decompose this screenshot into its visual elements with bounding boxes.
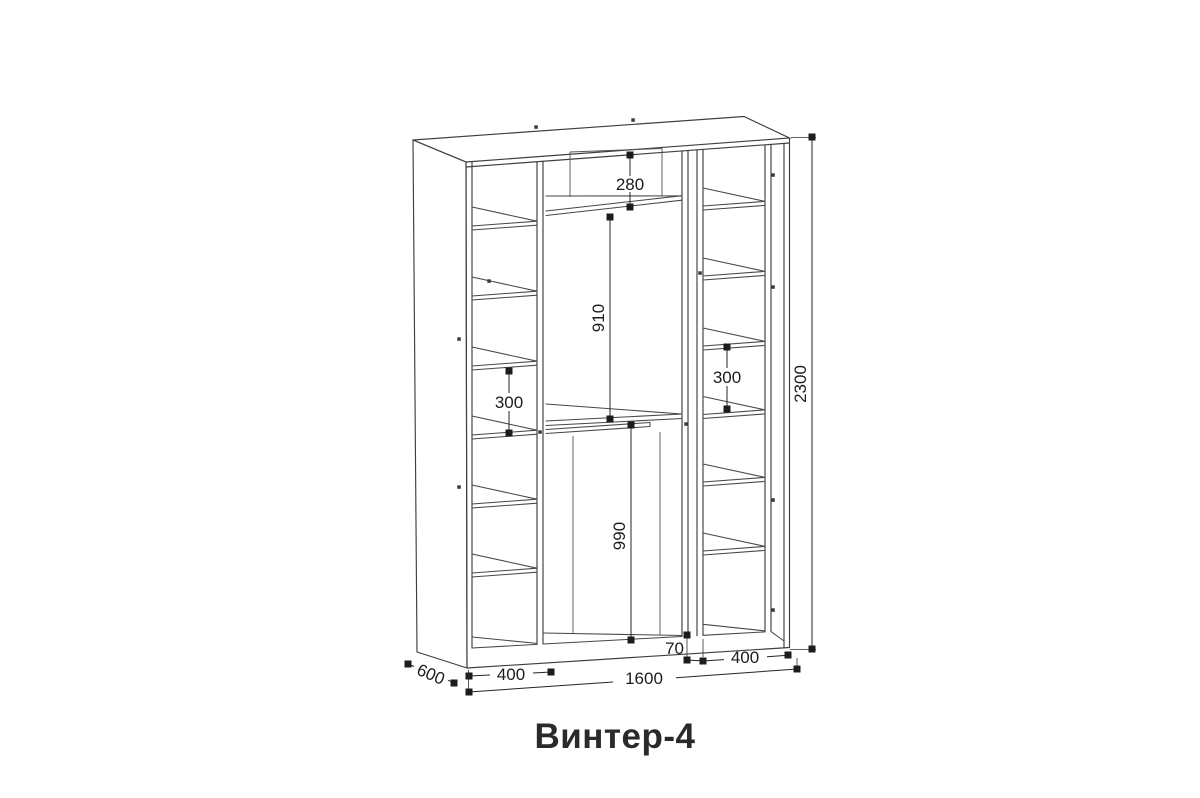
bottom-floor: [472, 624, 784, 648]
dim-top-compartment: 280: [616, 152, 644, 211]
left-shelf-column: [472, 207, 537, 577]
dim-upper-middle-label: 910: [589, 304, 608, 332]
product-title: Винтер-4: [534, 717, 695, 756]
cabinet-outline: [413, 117, 790, 669]
dim-top-compartment-label: 280: [616, 175, 644, 194]
interior-back-lines: [570, 149, 662, 636]
dim-lower-middle-label: 990: [610, 522, 629, 550]
dim-right-shelf-spacing-label: 300: [713, 368, 741, 387]
dim-center-gap: 70: [665, 632, 706, 665]
dim-overall-height: 2300: [790, 134, 816, 653]
top-panel: [413, 117, 790, 163]
dim-overall-width-label: 1600: [625, 669, 663, 688]
dim-overall-height-label: 2300: [791, 365, 810, 403]
dim-center-gap-label: 70: [665, 639, 684, 658]
dim-left-shelf-spacing-label: 300: [495, 393, 523, 412]
dim-left-section: 400: [466, 665, 555, 684]
dim-depth: 600: [405, 660, 458, 689]
left-side-panel: [413, 140, 467, 668]
dim-left-section-label: 400: [497, 665, 525, 684]
dim-upper-middle: 910: [589, 214, 614, 423]
dim-right-section-label: 400: [731, 648, 759, 667]
drawing-page: 280 910 990 300 300 2300: [0, 0, 1200, 798]
dim-lower-middle: 990: [610, 422, 635, 644]
wardrobe-technical-drawing: 280 910 990 300 300 2300: [0, 0, 1200, 798]
dim-right-section: 400: [703, 639, 792, 667]
middle-section: [546, 196, 682, 434]
dim-depth-label: 600: [414, 660, 448, 689]
dim-right-shelf-spacing: 300: [713, 344, 741, 413]
